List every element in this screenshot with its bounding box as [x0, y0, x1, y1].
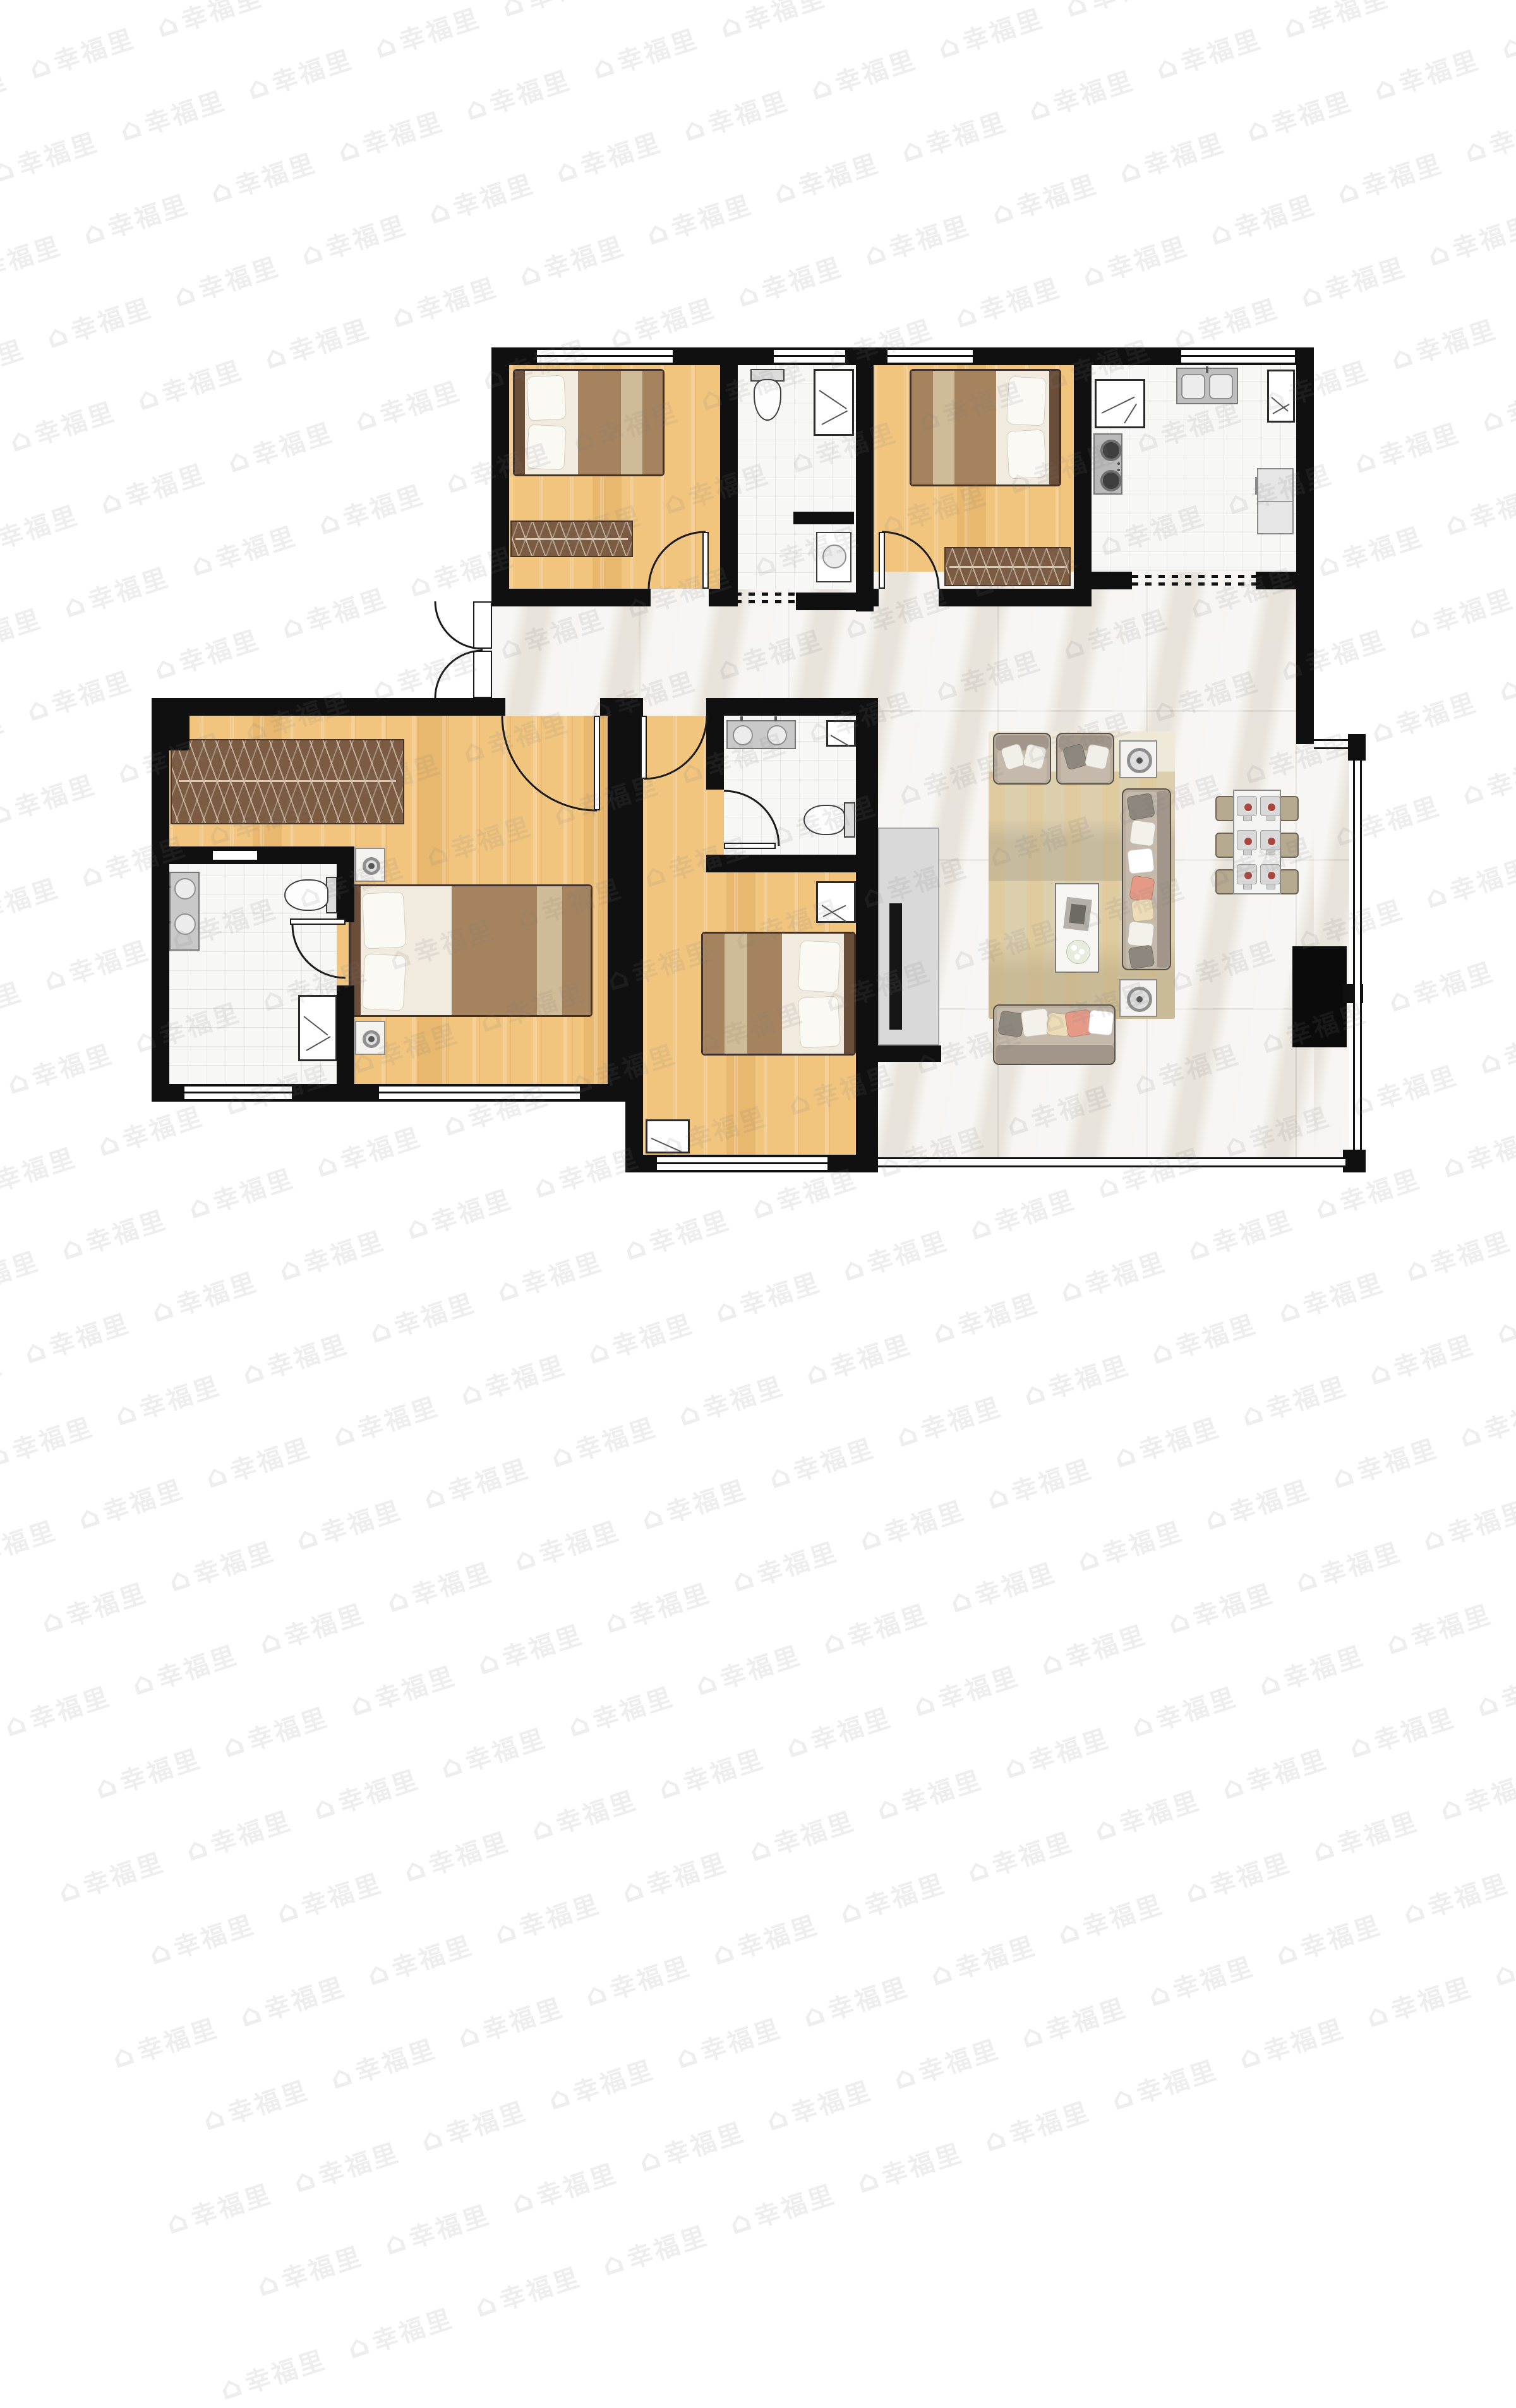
floorplan-page: { "watermark": { "text": "幸福里", "house_g… — [0, 0, 1516, 1516]
watermark-house-icon: ⌂ — [762, 2098, 792, 2138]
watermark-house-icon: ⌂ — [1345, 1726, 1375, 1765]
watermark-house-icon: ⌂ — [416, 2119, 447, 2158]
watermark-logo: ⌂幸福里 — [1508, 1553, 1516, 1622]
watermark-house-icon: ⌂ — [252, 2264, 282, 2303]
watermark-logo: ⌂幸福里 — [1361, 1967, 1476, 2036]
watermark-logo: ⌂幸福里 — [925, 1925, 1040, 1994]
watermark-logo: ⌂幸福里 — [399, 1821, 514, 1890]
watermark-text: 幸福里 — [1405, 1594, 1496, 1654]
watermark-logo: ⌂幸福里 — [107, 2008, 222, 2076]
watermark-logo: ⌂幸福里 — [470, 2256, 585, 2325]
watermark-house-icon: ⌂ — [1073, 1539, 1103, 1579]
watermark-text: 幸福里 — [822, 1966, 913, 2027]
wall-segment — [709, 589, 738, 606]
watermark-text: 幸福里 — [605, 1946, 695, 2006]
watermark-logo: ⌂幸福里 — [599, 1573, 714, 1642]
watermark-text: 幸福里 — [1386, 1967, 1476, 2028]
watermark-logo: ⌂幸福里 — [379, 2194, 494, 2263]
window — [774, 347, 845, 365]
opening-dashed — [735, 593, 796, 596]
watermark-text: 幸福里 — [1496, 1656, 1516, 1717]
watermark-text: 幸福里 — [987, 1822, 1077, 1882]
watermark-logo: ⌂幸福里 — [453, 1987, 568, 2056]
watermark-house-icon: ⌂ — [218, 1725, 248, 1764]
watermark-text: 幸福里 — [752, 1531, 842, 1592]
watermark-house-icon: ⌂ — [363, 1953, 393, 1992]
window — [379, 1084, 580, 1102]
watermark-logo: ⌂幸福里 — [1143, 1946, 1258, 2015]
door-swing — [502, 716, 597, 810]
watermark-house-icon: ⌂ — [436, 1746, 466, 1785]
watermark-house-icon: ⌂ — [1164, 1601, 1194, 1640]
watermark-text: 幸福里 — [1241, 1739, 1332, 1800]
watermark-house-icon: ⌂ — [1381, 1622, 1412, 1661]
watermark-text: 幸福里 — [715, 1635, 805, 1695]
watermark-house-icon: ⌂ — [798, 1995, 829, 2034]
watermark-house-icon: ⌂ — [162, 2202, 192, 2241]
watermark-logo: ⌂幸福里 — [1016, 1987, 1131, 2056]
watermark-logo: ⌂幸福里 — [472, 1614, 587, 1683]
bed-top-left — [513, 369, 665, 476]
watermark-house-icon: ⌂ — [654, 1767, 684, 1806]
watermark-text: 幸福里 — [1188, 1573, 1278, 1634]
watermark-logo: ⌂幸福里 — [490, 1884, 605, 1953]
watermark-logo: ⌂幸福里 — [725, 2174, 839, 2242]
wall-segment — [189, 698, 505, 716]
watermark-text: 幸福里 — [568, 2049, 658, 2110]
watermark-logo: ⌂幸福里 — [255, 1593, 370, 1662]
watermark-house-icon: ⌂ — [198, 2098, 229, 2138]
watermark-house-icon: ⌂ — [382, 1580, 412, 1620]
watermark-text: 幸福里 — [1296, 1905, 1386, 1965]
sofa-bottom — [993, 1004, 1116, 1065]
kitchen-sink — [1176, 368, 1238, 404]
watermark-logo: ⌂幸福里 — [563, 1677, 678, 1745]
middle-toilet-bowl — [803, 805, 845, 835]
watermark-text: 幸福里 — [913, 2029, 1004, 2090]
watermark-text: 幸福里 — [1061, 1615, 1151, 1675]
watermark-text: 幸福里 — [1004, 2091, 1094, 2152]
watermark-text: 幸福里 — [933, 1656, 1023, 1716]
watermark-logo: ⌂幸福里 — [215, 2339, 330, 2408]
watermark-text: 幸福里 — [1151, 1677, 1241, 1737]
wall-segment — [1348, 734, 1366, 761]
watermark-logo: ⌂幸福里 — [127, 1635, 242, 1704]
watermark-text: 幸福里 — [313, 2132, 404, 2193]
watermark-house-icon: ⌂ — [235, 1995, 265, 2034]
opening-dashed — [1132, 582, 1256, 586]
wall-segment — [856, 365, 874, 611]
wall-segment — [491, 365, 509, 601]
watermark-logo: ⌂幸福里 — [345, 1656, 460, 1725]
watermark-logo: ⌂幸福里 — [416, 2091, 531, 2160]
wall-segment — [337, 985, 354, 1084]
watermark-house-icon: ⌂ — [1435, 1788, 1465, 1827]
watermark-logo: ⌂幸福里 — [872, 1759, 987, 1828]
watermark-logo: ⌂幸福里 — [436, 1718, 551, 1786]
middle-bath-shower — [826, 720, 856, 747]
bed-top-right — [910, 369, 1061, 486]
entry-door-swing — [435, 651, 483, 698]
watermark-house-icon: ⌂ — [980, 2119, 1010, 2158]
nightstand-master-top — [355, 848, 385, 882]
watermark-text: 幸福里 — [1023, 1718, 1114, 1779]
watermark-text: 幸福里 — [404, 2194, 494, 2255]
watermark-logo: ⌂幸福里 — [617, 1842, 732, 1911]
watermark-house-icon: ⌂ — [1217, 1767, 1248, 1807]
watermark-logo: ⌂幸福里 — [507, 2153, 622, 2222]
door-leaf — [290, 918, 346, 925]
watermark-logo: ⌂幸福里 — [1107, 2050, 1222, 2119]
watermark-logo: ⌂幸福里 — [382, 1552, 496, 1621]
watermark-house-icon: ⌂ — [453, 2016, 483, 2055]
watermark-logo: ⌂幸福里 — [1489, 1925, 1516, 1994]
watermark-logo: ⌂幸福里 — [671, 2008, 786, 2077]
watermark-text: 幸福里 — [1423, 1863, 1513, 1924]
watermark-house-icon: ⌂ — [671, 2037, 701, 2076]
dining-table — [1233, 790, 1281, 894]
wall-segment — [152, 698, 169, 1102]
watermark-logo: ⌂幸福里 — [1180, 1843, 1295, 1911]
watermark-house-icon: ⌂ — [108, 2036, 138, 2075]
tv-cabinet-black — [1292, 946, 1347, 1047]
watermark-text: 幸福里 — [1097, 1511, 1188, 1572]
door-swing — [882, 532, 939, 589]
wall-segment — [152, 698, 189, 750]
watermark-text: 幸福里 — [678, 1738, 769, 1799]
watermark-house-icon: ⌂ — [91, 1767, 121, 1806]
watermark-text: 幸福里 — [188, 1531, 279, 1592]
watermark-house-icon: ⌂ — [708, 1933, 738, 1972]
watermark-text: 幸福里 — [842, 1594, 932, 1654]
wall-segment — [608, 698, 625, 1102]
kitchen-stove — [1093, 433, 1122, 495]
watermark-logo: ⌂幸福里 — [1217, 1739, 1332, 1808]
watermark-house-icon: ⌂ — [690, 1663, 721, 1702]
window — [537, 347, 673, 365]
window — [184, 1084, 292, 1102]
watermark-logo: ⌂幸福里 — [1234, 2008, 1349, 2077]
watermark-text: 幸福里 — [659, 2112, 749, 2172]
watermark-text: 幸福里 — [1315, 1532, 1405, 1592]
watermark-house-icon: ⌂ — [946, 1580, 976, 1620]
watermark-text: 幸福里 — [460, 1718, 551, 1778]
watermark-text: 幸福里 — [132, 2008, 222, 2068]
watermark-logo: ⌂幸福里 — [1290, 1532, 1405, 1601]
watermark-logo: ⌂幸福里 — [1472, 1656, 1516, 1725]
watermark-text: 幸福里 — [78, 1842, 169, 1903]
watermark-text: 幸福里 — [387, 1925, 477, 1985]
watermark-house-icon: ⌂ — [164, 1560, 195, 1599]
armchair-1 — [993, 733, 1051, 785]
watermark-logo: ⌂幸福里 — [161, 2174, 276, 2242]
watermark-text: 幸福里 — [877, 2133, 967, 2193]
watermark-text: 幸福里 — [222, 2070, 313, 2131]
watermark-logo: ⌂幸福里 — [181, 1800, 296, 1869]
watermark-logo: ⌂幸福里 — [0, 1510, 61, 1579]
watermark-house-icon: ⌂ — [1016, 2016, 1047, 2055]
sofa-long — [1122, 788, 1171, 970]
floor-plan — [0, 0, 1516, 1516]
watermark-logo: ⌂幸福里 — [289, 2132, 404, 2201]
middle-corner-cabinet-top — [816, 881, 856, 923]
watermark-house-icon: ⌂ — [745, 1829, 775, 1869]
sink-top-bath — [816, 532, 851, 582]
watermark-house-icon: ⌂ — [909, 1684, 939, 1723]
wall-segment — [793, 512, 854, 524]
watermark-house-icon: ⌂ — [346, 1684, 376, 1723]
watermark-house-icon: ⌂ — [889, 2057, 920, 2097]
watermark-logo: ⌂幸福里 — [690, 1635, 805, 1704]
watermark-house-icon: ⌂ — [309, 1788, 339, 1827]
watermark-text: 幸福里 — [769, 1801, 859, 1862]
watermark-text: 幸福里 — [61, 1572, 152, 1633]
watermark-house-icon: ⌂ — [1399, 1892, 1429, 1931]
watermark-text: 幸福里 — [1078, 1884, 1168, 1944]
shower-top — [814, 369, 854, 436]
nightstand-master-bottom — [355, 1021, 385, 1055]
watermark-text: 幸福里 — [622, 2215, 712, 2276]
watermark-text: 幸福里 — [1040, 1987, 1131, 2048]
watermark-text: 幸福里 — [896, 1759, 987, 1820]
watermark-house-icon: ⌂ — [255, 1622, 285, 1661]
watermark-logo: ⌂幸福里 — [798, 1966, 913, 2035]
watermark-logo: ⌂幸福里 — [144, 1904, 259, 1973]
kitchen-corner-cabinet-left — [1095, 379, 1145, 428]
watermark-house-icon: ⌂ — [490, 1912, 520, 1951]
watermark-logo: ⌂幸福里 — [543, 2049, 658, 2118]
watermark-text: 幸福里 — [695, 2008, 786, 2069]
watermark-text: 幸福里 — [115, 1738, 205, 1799]
watermark-text: 幸福里 — [1114, 1780, 1205, 1841]
kitchen-fridge — [1257, 468, 1294, 534]
middle-toilet-tank — [844, 802, 855, 838]
master-bath-pocket-door — [213, 849, 257, 862]
tv-panel — [878, 828, 939, 1045]
watermark-logo: ⌂幸福里 — [1073, 1511, 1188, 1580]
watermark-house-icon: ⌂ — [326, 2057, 356, 2096]
watermark-logo: ⌂幸福里 — [1381, 1594, 1496, 1663]
watermark-house-icon: ⌂ — [181, 1829, 212, 1868]
armchair-2 — [1056, 733, 1114, 785]
wall-segment — [856, 698, 878, 1172]
watermark-text: 幸福里 — [1513, 1925, 1516, 1986]
watermark-text: 幸福里 — [242, 1697, 332, 1757]
watermark-text: 幸福里 — [860, 1863, 950, 1923]
watermark-house-icon: ⌂ — [1509, 1581, 1516, 1620]
watermark-house-icon: ⌂ — [999, 1747, 1030, 1786]
watermark-text: 幸福里 — [279, 1593, 370, 1654]
watermark-house-icon: ⌂ — [1107, 2078, 1138, 2117]
watermark-logo: ⌂幸福里 — [1435, 1760, 1516, 1829]
watermark-house-icon: ⌂ — [507, 2181, 538, 2220]
watermark-logo: ⌂幸福里 — [1036, 1615, 1151, 1683]
watermark-logo: ⌂幸福里 — [1308, 1801, 1423, 1870]
watermark-logo: ⌂幸福里 — [252, 2236, 367, 2304]
watermark-logo: ⌂幸福里 — [1344, 1697, 1459, 1766]
watermark-text: 幸福里 — [1278, 1635, 1369, 1696]
wall-segment — [1256, 572, 1296, 589]
watermark-logo: ⌂幸福里 — [1271, 1905, 1386, 1973]
watermark-text: 幸福里 — [333, 1759, 423, 1820]
watermark-house-icon: ⌂ — [1181, 1871, 1211, 1910]
master-toilet-bowl — [284, 879, 328, 911]
wall-segment — [1074, 365, 1092, 606]
wall-segment — [706, 855, 856, 872]
watermark-house-icon: ⌂ — [852, 2161, 882, 2200]
watermark-house-icon: ⌂ — [54, 1870, 84, 1910]
bed-master — [349, 884, 593, 1017]
watermark-house-icon: ⌂ — [1127, 1705, 1157, 1744]
watermark-house-icon: ⌂ — [1234, 2037, 1265, 2076]
master-bath-vanity — [169, 872, 200, 951]
watermark-logo: ⌂幸福里 — [908, 1656, 1023, 1725]
middle-corner-cabinet-bottom — [646, 1119, 690, 1153]
dining-chair — [1278, 833, 1299, 858]
watermark-text: 幸福里 — [152, 1635, 242, 1695]
watermark-text: 幸福里 — [370, 1656, 460, 1716]
watermark-logo: ⌂幸福里 — [342, 2298, 457, 2367]
watermark-logo: ⌂幸福里 — [1163, 1573, 1278, 1642]
watermark-logo: ⌂幸福里 — [634, 2112, 749, 2181]
entry-door-swing — [435, 601, 483, 649]
wall-segment — [491, 589, 651, 606]
watermark-text: 幸福里 — [367, 2298, 457, 2359]
watermark-house-icon: ⌂ — [272, 1891, 302, 1930]
door-swing — [649, 532, 706, 589]
wall-segment — [856, 589, 879, 606]
watermark-logo: ⌂幸福里 — [889, 2029, 1004, 2098]
watermark-house-icon: ⌂ — [544, 2078, 574, 2117]
watermark-house-icon: ⌂ — [1308, 1829, 1339, 1869]
window — [1181, 347, 1295, 365]
watermark-logo: ⌂幸福里 — [526, 1780, 641, 1849]
watermark-logo: ⌂幸福里 — [999, 1718, 1114, 1787]
watermark-text: 幸福里 — [169, 1904, 259, 1965]
watermark-logo: ⌂幸福里 — [744, 1801, 859, 1870]
watermark-text: 幸福里 — [1205, 1843, 1295, 1903]
wall-segment — [1092, 572, 1132, 589]
watermark-text: 幸福里 — [732, 1905, 822, 1965]
watermark-logo: ⌂幸福里 — [761, 2070, 876, 2139]
watermark-logo: ⌂幸福里 — [90, 1738, 205, 1807]
watermark-logo: ⌂幸福里 — [218, 1697, 333, 1766]
watermark-text: 幸福里 — [514, 1884, 605, 1944]
watermark-house-icon: ⌂ — [527, 1809, 557, 1848]
watermark-logo: ⌂幸福里 — [727, 1531, 842, 1600]
watermark-text: 幸福里 — [441, 2091, 531, 2152]
watermark-house-icon: ⌂ — [926, 1954, 956, 1993]
watermark-text: 幸福里 — [478, 1987, 568, 2048]
opening-dashed — [735, 600, 796, 603]
watermark-logo: ⌂幸福里 — [654, 1738, 769, 1807]
wall-segment — [1296, 365, 1314, 744]
watermark-text: 幸福里 — [1369, 1697, 1459, 1758]
watermark-logo: ⌂幸福里 — [817, 1594, 932, 1663]
watermark-house-icon: ⌂ — [1254, 1664, 1284, 1703]
dining-chair — [1278, 796, 1299, 821]
watermark-logo: ⌂幸福里 — [362, 1925, 477, 1994]
watermark-house-icon: ⌂ — [872, 1788, 902, 1827]
watermark-logo: ⌂幸福里 — [781, 1697, 896, 1766]
watermark-logo: ⌂幸福里 — [962, 1822, 1077, 1891]
watermark-text: 幸福里 — [749, 2174, 839, 2234]
watermark-house-icon: ⌂ — [728, 1560, 758, 1599]
watermark-logo: ⌂幸福里 — [54, 1842, 169, 1911]
watermark-logo: ⌂幸福里 — [37, 1572, 152, 1641]
watermark-text: 幸福里 — [406, 1552, 496, 1613]
watermark-text: 幸福里 — [186, 2174, 276, 2234]
tv-screen — [889, 903, 902, 1030]
watermark-house-icon: ⌂ — [617, 1870, 647, 1910]
window — [1353, 761, 1362, 1150]
watermark-text: 幸福里 — [423, 1821, 514, 1882]
watermark-house-icon: ⌂ — [37, 1601, 67, 1640]
watermark-house-icon: ⌂ — [510, 1539, 540, 1578]
watermark-logo: ⌂幸福里 — [235, 1966, 350, 2035]
door-swing — [724, 791, 779, 846]
watermark-text: 幸福里 — [1131, 2050, 1222, 2110]
watermark-logo: ⌂幸福里 — [1053, 1884, 1168, 1953]
wall-segment — [878, 1045, 941, 1062]
watermark-house-icon: ⌂ — [215, 2368, 246, 2407]
watermark-text: 幸福里 — [950, 1925, 1040, 1986]
watermark-text: 幸福里 — [296, 1863, 387, 1923]
wall-segment — [162, 846, 354, 864]
watermark-house-icon: ⌂ — [1144, 1975, 1174, 2014]
watermark-house-icon: ⌂ — [600, 1601, 630, 1640]
watermark-text: 幸福里 — [495, 2256, 585, 2317]
watermark-logo: ⌂幸福里 — [325, 2028, 440, 2097]
watermark-text: 幸福里 — [1259, 2008, 1349, 2069]
watermark-text: 幸福里 — [970, 1552, 1060, 1613]
watermark-text: 幸福里 — [587, 1677, 678, 1737]
watermark-logo: ⌂幸福里 — [164, 1531, 279, 1600]
wall-segment — [720, 365, 738, 606]
watermark-house-icon: ⌂ — [470, 2285, 500, 2324]
watermark-house-icon: ⌂ — [289, 2160, 320, 2200]
watermark-house-icon: ⌂ — [598, 2244, 628, 2283]
watermark-text: 幸福里 — [805, 1697, 896, 1758]
opening-dashed — [1132, 575, 1256, 578]
watermark-house-icon: ⌂ — [399, 1850, 430, 1889]
watermark-text: 幸福里 — [260, 1966, 350, 2027]
watermark-logo: ⌂幸福里 — [945, 1552, 1060, 1621]
watermark-house-icon: ⌂ — [1472, 1685, 1502, 1724]
side-table-top — [1119, 740, 1157, 778]
watermark-logo: ⌂幸福里 — [509, 1510, 624, 1579]
watermark-house-icon: ⌂ — [634, 2140, 665, 2179]
watermark-house-icon: ⌂ — [128, 1663, 158, 1702]
watermark-text: 幸福里 — [1168, 1946, 1258, 2007]
watermark-house-icon: ⌂ — [563, 1705, 594, 1744]
bed-middle — [701, 932, 856, 1056]
watermark-text: 幸福里 — [497, 1614, 587, 1675]
watermark-house-icon: ⌂ — [380, 2223, 410, 2262]
watermark-logo: ⌂幸福里 — [198, 2070, 313, 2139]
wardrobe-master — [171, 739, 404, 824]
watermark-house-icon: ⌂ — [1271, 1933, 1301, 1972]
watermark-text: 幸福里 — [624, 1573, 714, 1634]
watermark-house-icon: ⌂ — [145, 1932, 175, 1972]
kitchen-corner-cabinet-right — [1267, 370, 1295, 423]
wardrobe-top-left — [510, 521, 633, 557]
watermark-text: 幸福里 — [531, 2153, 622, 2213]
door-swing — [644, 716, 707, 779]
window — [1314, 739, 1348, 749]
watermark-house-icon: ⌂ — [1090, 1809, 1120, 1848]
watermark-text: 幸福里 — [350, 2028, 440, 2089]
